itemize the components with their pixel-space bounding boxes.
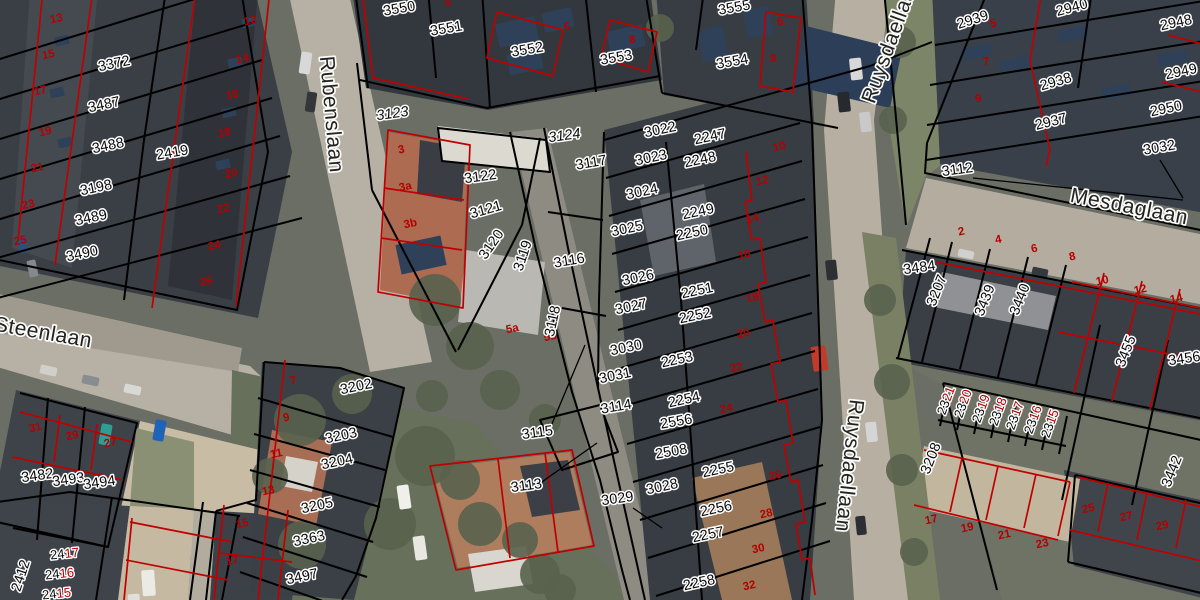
tree-canopy <box>458 502 502 546</box>
parked-car <box>127 594 140 600</box>
aerial-cadastral-map[interactable]: 1315171921232512141618202224264686833a3b… <box>0 0 1200 600</box>
parked-car <box>865 421 878 442</box>
parked-car <box>837 91 851 112</box>
tree-canopy <box>440 460 480 500</box>
parcel-housenumber-label: 2417 <box>49 545 79 563</box>
parked-car <box>859 111 872 132</box>
parked-car <box>141 570 156 597</box>
tree-canopy <box>416 380 448 412</box>
tree-canopy <box>480 370 520 410</box>
parked-car <box>825 259 838 280</box>
tree-canopy <box>274 394 326 446</box>
map-canvas[interactable]: 1315171921232512141618202224264686833a3b… <box>0 0 1200 600</box>
tree-canopy <box>886 454 918 486</box>
parcel-housenumber-label: 2415 <box>41 585 71 600</box>
parked-car <box>855 516 867 536</box>
tree-canopy <box>874 364 910 400</box>
tree-canopy <box>900 538 928 566</box>
tree-canopy <box>879 106 907 134</box>
tree-canopy <box>864 284 896 316</box>
parcel-housenumber-label: 2416 <box>44 565 74 583</box>
